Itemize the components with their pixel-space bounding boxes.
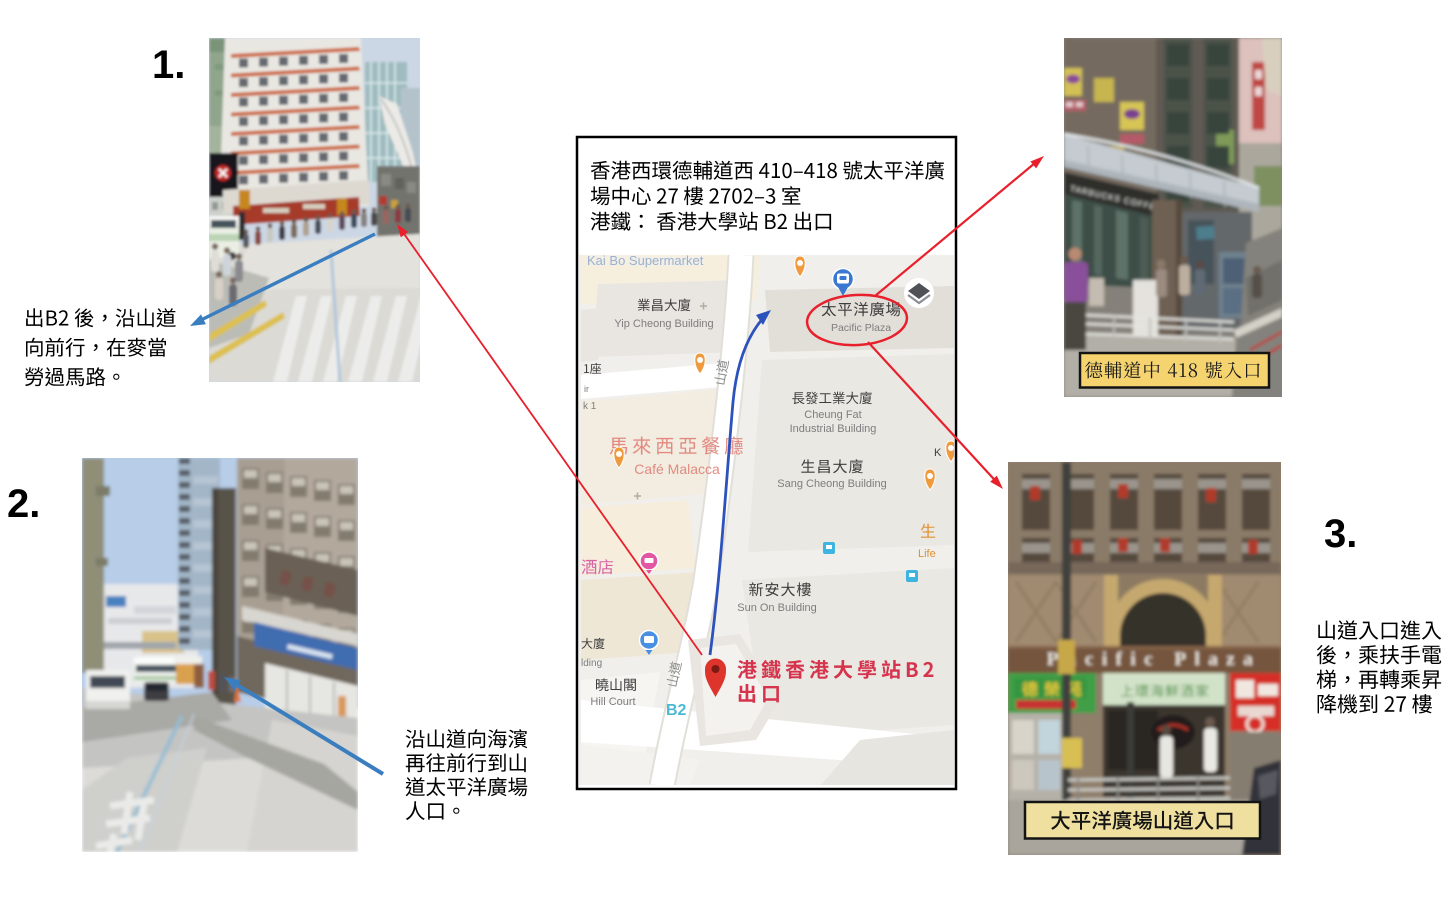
svg-text:Hill Court: Hill Court <box>590 696 635 708</box>
svg-text:2.: 2. <box>7 482 40 526</box>
svg-text:k 1: k 1 <box>583 401 597 412</box>
svg-text:Industrial Building: Industrial Building <box>790 423 877 435</box>
svg-text:lding: lding <box>581 658 602 669</box>
svg-text:B2: B2 <box>666 702 687 719</box>
svg-text:Pacific Plaza: Pacific Plaza <box>1047 649 1261 670</box>
svg-text:Sun On Building: Sun On Building <box>737 602 817 614</box>
svg-text:Life: Life <box>918 548 936 560</box>
svg-text:1.: 1. <box>152 43 185 87</box>
svg-text:ir: ir <box>584 384 589 394</box>
svg-text:3.: 3. <box>1324 512 1357 556</box>
svg-text:Pacific Plaza: Pacific Plaza <box>831 322 891 334</box>
svg-text:K: K <box>934 447 942 459</box>
svg-text:Yip Cheong Building: Yip Cheong Building <box>614 318 713 330</box>
svg-text:Cheung Fat: Cheung Fat <box>804 409 861 421</box>
svg-text:Café Malacca: Café Malacca <box>634 461 720 477</box>
svg-text:Sang Cheong Building: Sang Cheong Building <box>777 478 886 490</box>
svg-text:Kai Bo Supermarket: Kai Bo Supermarket <box>587 253 704 268</box>
